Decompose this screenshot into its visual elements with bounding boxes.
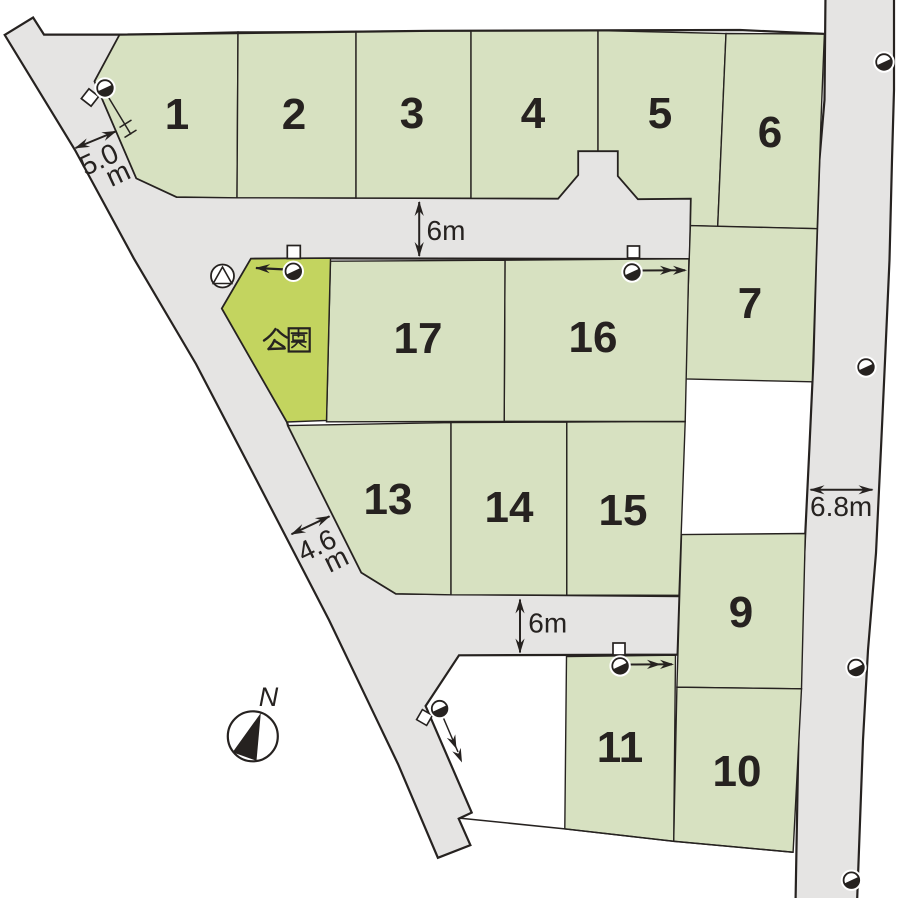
svg-text:4: 4 [521, 89, 546, 138]
svg-text:13: 13 [364, 475, 413, 524]
svg-text:16: 16 [569, 313, 618, 362]
svg-text:6m: 6m [427, 215, 466, 246]
svg-text:6.8m: 6.8m [810, 491, 872, 522]
svg-text:17: 17 [394, 314, 443, 363]
svg-text:5: 5 [648, 89, 672, 138]
svg-text:11: 11 [597, 723, 644, 772]
svg-text:2: 2 [282, 90, 306, 139]
svg-text:15: 15 [599, 486, 648, 535]
svg-text:9: 9 [729, 588, 753, 637]
svg-text:6m: 6m [528, 608, 567, 639]
svg-text:1: 1 [165, 90, 189, 139]
svg-text:10: 10 [713, 747, 762, 796]
svg-text:7: 7 [738, 279, 762, 328]
svg-text:14: 14 [485, 483, 534, 532]
svg-text:6: 6 [758, 108, 782, 157]
svg-text:3: 3 [400, 89, 424, 138]
svg-text:N: N [259, 682, 279, 712]
